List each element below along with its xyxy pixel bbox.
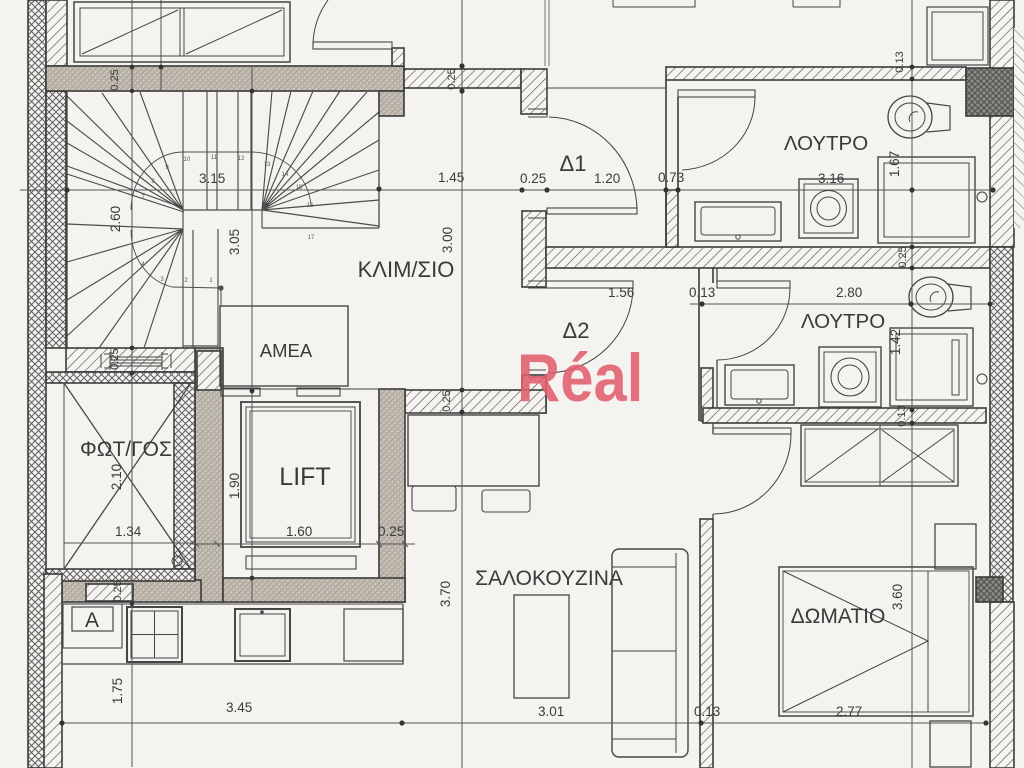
svg-text:3.45: 3.45: [226, 700, 252, 715]
svg-text:0.25: 0.25: [378, 524, 404, 539]
svg-text:2.77: 2.77: [836, 704, 862, 719]
svg-text:3.01: 3.01: [538, 704, 564, 719]
svg-text:LIFT: LIFT: [279, 463, 330, 491]
svg-text:17: 17: [308, 235, 315, 241]
svg-text:11: 11: [211, 155, 218, 161]
svg-text:0.25: 0.25: [520, 171, 546, 186]
svg-text:0.13: 0.13: [894, 51, 906, 72]
svg-text:Δ1: Δ1: [560, 151, 587, 176]
svg-text:3.15: 3.15: [199, 171, 225, 186]
svg-text:AMEA: AMEA: [260, 340, 313, 361]
svg-text:0.25: 0.25: [446, 68, 458, 89]
svg-text:1.56: 1.56: [608, 285, 634, 300]
svg-text:3.05: 3.05: [227, 229, 242, 255]
svg-text:ΛΟΥΤΡΟ: ΛΟΥΤΡΟ: [784, 132, 868, 155]
svg-text:3.60: 3.60: [890, 584, 905, 610]
svg-text:2.60: 2.60: [108, 206, 123, 232]
svg-text:ΔΩΜΑΤΙΟ: ΔΩΜΑΤΙΟ: [791, 605, 886, 628]
svg-text:1.90: 1.90: [227, 473, 242, 499]
svg-text:0.73: 0.73: [658, 170, 684, 185]
svg-text:0.13: 0.13: [896, 405, 908, 426]
svg-text:ΚΛΙΜ/ΣΙΟ: ΚΛΙΜ/ΣΙΟ: [358, 257, 455, 282]
svg-text:1.34: 1.34: [115, 524, 142, 539]
svg-text:1.75: 1.75: [110, 678, 125, 704]
svg-text:ΦΩΤ/ΓΟΣ: ΦΩΤ/ΓΟΣ: [80, 438, 172, 461]
svg-text:0.25: 0.25: [441, 390, 453, 411]
svg-text:0.13: 0.13: [689, 285, 715, 300]
svg-text:3.00: 3.00: [440, 227, 455, 253]
svg-text:1.20: 1.20: [594, 171, 620, 186]
svg-text:0.13: 0.13: [694, 704, 720, 719]
svg-text:1.67: 1.67: [887, 151, 902, 177]
svg-text:1.60: 1.60: [286, 524, 312, 539]
svg-text:14: 14: [282, 172, 289, 178]
svg-text:ΣΑΛΟΚΟΥΖΙΝΑ: ΣΑΛΟΚΟΥΖΙΝΑ: [475, 567, 623, 590]
svg-text:2.10: 2.10: [109, 464, 124, 490]
svg-text:ΛΟΥΤΡΟ: ΛΟΥΤΡΟ: [801, 310, 885, 333]
svg-text:Réal: Réal: [517, 339, 643, 415]
svg-text:1.45: 1.45: [438, 170, 464, 185]
svg-text:1.42: 1.42: [888, 329, 903, 355]
svg-text:16: 16: [307, 203, 314, 209]
svg-text:2.80: 2.80: [836, 285, 862, 300]
svg-text:0.25: 0.25: [109, 348, 121, 369]
svg-text:0.25: 0.25: [109, 69, 121, 90]
svg-text:3.70: 3.70: [438, 581, 453, 607]
svg-text:12: 12: [238, 156, 245, 162]
svg-text:3.16: 3.16: [818, 171, 844, 186]
svg-text:10: 10: [184, 157, 191, 163]
svg-text:13: 13: [264, 162, 271, 168]
svg-text:0.25: 0.25: [897, 246, 909, 267]
svg-text:A: A: [85, 609, 99, 632]
svg-text:0.25: 0.25: [112, 580, 124, 601]
